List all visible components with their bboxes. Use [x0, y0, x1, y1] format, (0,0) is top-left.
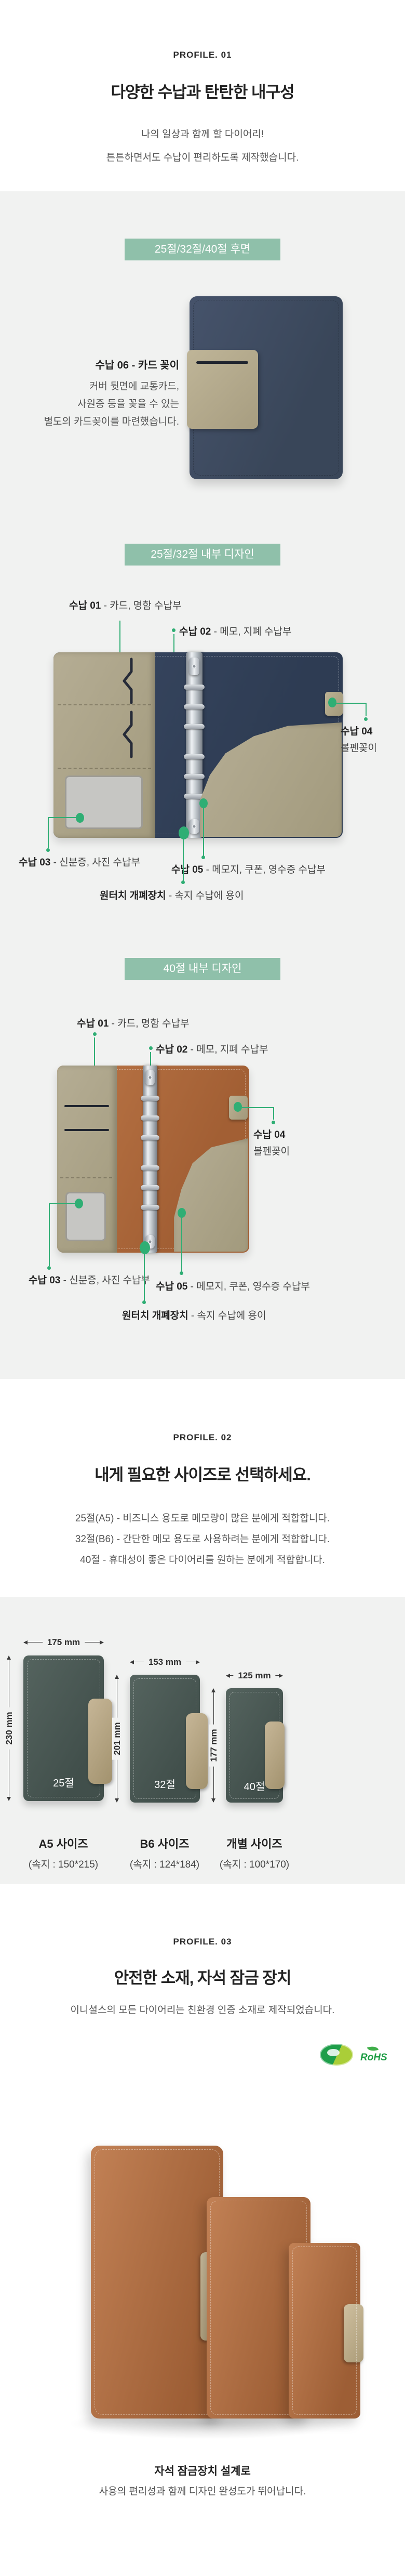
callout-line [144, 1253, 145, 1302]
callout-line [183, 838, 184, 882]
dimension-arrow-width-b6: 153 mm [130, 1658, 200, 1666]
size-name-a5: A5 사이즈 [6, 1835, 120, 1851]
binder-ring [184, 774, 205, 779]
profile03-caption1: 자석 잠금장치 설계로 [0, 2463, 405, 2478]
panel-seam [58, 704, 151, 705]
callout-line [49, 1203, 77, 1204]
callout-one-touch: 원터치 개폐장치 - 속지 수납에 용이 [100, 888, 244, 902]
profile02-line2: 32절(B6) - 간단한 메모 용도로 사용하려는 분에게 적합합니다. [0, 1531, 405, 1545]
callout-snap05: 수납 05 - 메모지, 쿠폰, 영수증 수납부 [171, 862, 326, 876]
binder-ring [141, 1205, 159, 1210]
callout-dot [234, 1102, 242, 1112]
callout-snap03-40: 수납 03 - 신분증, 사진 수납부 [29, 1272, 150, 1286]
callout-dot [328, 698, 336, 707]
badge-interior-40: 40절 내부 디자인 [125, 958, 280, 980]
panel-seam [60, 1177, 112, 1178]
callout-dot [181, 880, 185, 884]
callout-line [48, 817, 77, 818]
profile01-title: 다양한 수납과 탄탄한 내구성 [0, 79, 405, 102]
callout-line [49, 1203, 50, 1266]
callout-line [48, 817, 49, 848]
magnet-diaries-photo [0, 2087, 405, 2451]
callout-line [181, 1216, 182, 1272]
badge-interior-2532: 25절/32절 내부 디자인 [125, 544, 280, 566]
size-inner-40: (속지 : 100*170) [197, 1857, 312, 1871]
interior-card-panel-40 [57, 1066, 117, 1253]
binder-ring [184, 724, 205, 729]
callout-line [273, 1107, 274, 1120]
size-inner-a5: (속지 : 150*215) [6, 1857, 120, 1871]
callout-snap02-40: 수납 02 - 메모, 지폐 수납부 [156, 1042, 268, 1056]
callout-dot [142, 1300, 146, 1304]
eco-cert-icon [320, 2044, 353, 2066]
dimension-arrow-width-40: 125 mm [226, 1672, 283, 1680]
profile03-caption2: 사용의 편리성과 함께 디자인 완성도가 뛰어납니다. [0, 2483, 405, 2498]
binder-knob [189, 819, 199, 834]
callout-snap04-desc: 볼펜꽂이 [341, 740, 377, 754]
cover-clasp [186, 1713, 208, 1789]
callout-snap01: 수납 01 - 카드, 명함 수납부 [69, 598, 181, 612]
callout-line [366, 703, 367, 716]
callout-snap04: 수납 04 [341, 724, 372, 738]
callout-dot [364, 717, 368, 721]
interior-photo-2532 [53, 652, 343, 838]
card-slot-slit [64, 1129, 109, 1131]
size-name-40: 개별 사이즈 [197, 1835, 312, 1851]
callout-dot [76, 813, 84, 823]
cover-clasp [265, 1721, 285, 1789]
callout-snap02: 수납 02 - 메모, 지폐 수납부 [179, 624, 291, 638]
interior-photo-40 [57, 1066, 249, 1253]
profile01-sub1: 나의 일상과 함께 할 다이어리! [0, 126, 405, 140]
panel-seam [58, 768, 151, 769]
callout-dot [272, 1121, 275, 1124]
badge-back-view: 25절/32절/40절 후면 [125, 239, 280, 260]
dimension-arrow-width-a5: 175 mm [23, 1638, 104, 1647]
profile02-line1: 25절(A5) - 비즈니스 용도로 메모량이 많은 분에게 적합합니다. [0, 1510, 405, 1524]
callout-one-touch-40: 원터치 개폐장치 - 속지 수납에 용이 [122, 1308, 266, 1322]
product-detail-page: PROFILE. 01 다양한 수납과 탄탄한 내구성 나의 일상과 함께 할 … [0, 0, 405, 2576]
binder-ring [141, 1185, 159, 1190]
binder-ring [141, 1165, 159, 1171]
binder-ring [184, 685, 205, 690]
binder-ring [184, 704, 205, 709]
callout-snap01-40: 수납 01 - 카드, 명함 수납부 [77, 1016, 189, 1030]
callout-line [203, 807, 204, 857]
callout-dot [172, 628, 176, 632]
id-window [65, 1192, 106, 1241]
card-slot-zigzag [121, 711, 137, 758]
binder-knob [145, 1070, 155, 1085]
diary-large [91, 2146, 223, 2419]
profile01-eyebrow: PROFILE. 01 [0, 50, 405, 60]
back-pocket-line1: 커버 뒷면에 교통카드, [21, 378, 179, 396]
callout-dot [93, 1032, 97, 1036]
rohs-cert-icon: RoHS [360, 2052, 387, 2064]
profile03-eyebrow: PROFILE. 03 [0, 1937, 405, 1947]
callout-dot [180, 1271, 183, 1275]
binder-ring [184, 754, 205, 759]
binder-ring [141, 1096, 159, 1101]
binder-ring [141, 1115, 159, 1121]
profile02-line3: 40절 - 휴대성이 좋은 다이어리를 원하는 분에게 적합합니다. [0, 1552, 405, 1566]
callout-snap04-40-desc: 볼펜꽂이 [253, 1144, 290, 1158]
back-pocket-line3: 별도의 카드꽂이를 마련했습니다. [21, 413, 179, 431]
dimension-arrow-height-a5: 230 mm [5, 1655, 14, 1801]
dimension-arrow-height-40: 177 mm [210, 1688, 218, 1803]
card-slot-zigzag [121, 658, 137, 704]
callout-dot [179, 826, 189, 839]
callout-dot [140, 1241, 150, 1254]
dimension-arrow-height-b6: 201 mm [113, 1675, 122, 1803]
callout-snap03: 수납 03 - 신분증, 사진 수납부 [19, 855, 140, 869]
card-slot-slit [64, 1105, 109, 1107]
profile02-title: 내게 필요한 사이즈로 선택하세요. [0, 1462, 405, 1485]
cover-clasp [88, 1699, 112, 1784]
profile03-title: 안전한 소재, 자석 잠금 장치 [0, 1965, 405, 1988]
callout-dot [46, 848, 50, 852]
back-pocket-line2: 사원증 등을 꽂을 수 있는 [21, 396, 179, 413]
binder-ring [141, 1135, 159, 1140]
binder-knob [189, 658, 199, 675]
back-card-holder [187, 350, 258, 429]
back-pocket-title: 수납 06 - 카드 꽂이 [21, 357, 179, 372]
card-slit [196, 361, 248, 364]
callout-dot [149, 1046, 153, 1050]
callout-line [336, 703, 367, 704]
interior-card-panel [53, 652, 155, 838]
diary-small [289, 2243, 360, 2419]
profile02-eyebrow: PROFILE. 02 [0, 1432, 405, 1443]
diary-clasp [344, 2304, 363, 2362]
callout-dot [201, 856, 205, 859]
back-pocket-text: 수납 06 - 카드 꽂이 커버 뒷면에 교통카드, 사원증 등을 꽂을 수 있… [21, 357, 179, 431]
callout-snap05-40: 수납 05 - 메모지, 쿠폰, 영수증 수납부 [156, 1279, 310, 1293]
callout-snap04-40: 수납 04 [253, 1127, 285, 1141]
callout-line [242, 1107, 274, 1108]
ring-binder-40 [143, 1066, 157, 1253]
profile03-desc: 이니셜스의 모든 다이어리는 친환경 인증 소재로 제작되었습니다. [0, 2002, 405, 2016]
profile01-sub2: 튼튼하면서도 수납이 편리하도록 제작했습니다. [0, 150, 405, 164]
callout-dot [47, 1266, 51, 1270]
